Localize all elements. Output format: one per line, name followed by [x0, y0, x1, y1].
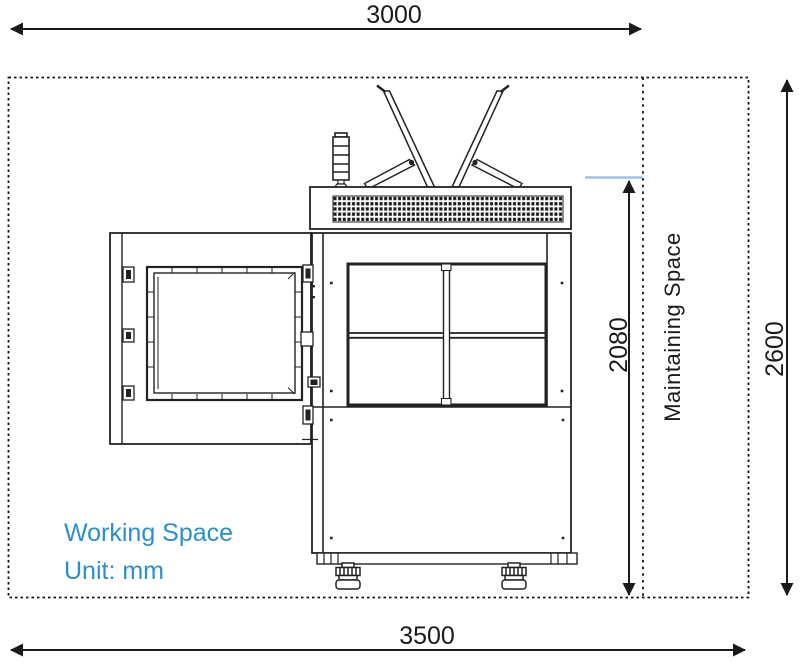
lid-hook-right — [501, 86, 510, 93]
dimension-label-3500: 3500 — [399, 622, 455, 650]
open-door — [110, 233, 320, 444]
top-lid-left — [365, 86, 435, 190]
maintaining-space-label: Maintaining Space — [660, 232, 685, 422]
leveling-foot-left — [336, 563, 360, 589]
dimension-working-width: 3000 — [11, 1, 641, 29]
top-lid-right — [452, 86, 522, 190]
door-handle — [301, 332, 313, 346]
lid-strut-left — [365, 160, 415, 190]
machine-footprint-diagram: 3000 3500 2600 2080 Maintaining Space — [0, 0, 800, 667]
dimension-total-height: 2600 — [761, 80, 789, 595]
working-space-label: Working Space — [64, 519, 233, 547]
dimension-label-2080: 2080 — [605, 317, 633, 373]
lid-strut-right — [472, 160, 522, 190]
diagram-canvas: 3000 3500 2600 2080 Maintaining Space — [0, 0, 800, 667]
dimension-machine-height: 2080 — [605, 181, 633, 595]
leveling-foot-right — [502, 563, 526, 589]
signal-tower-icon — [333, 133, 349, 188]
lid-hook-left — [377, 86, 386, 93]
viewing-window — [348, 264, 546, 405]
machine-head — [310, 187, 571, 229]
dimension-total-width: 3500 — [11, 622, 745, 650]
unit-label: Unit: mm — [64, 557, 164, 585]
machine-drawing — [110, 86, 577, 590]
dimension-label-3000: 3000 — [366, 1, 422, 29]
machine-body — [312, 233, 571, 553]
vent-grille — [333, 196, 563, 222]
machine-base — [317, 553, 577, 589]
dimension-label-2600: 2600 — [761, 321, 789, 377]
